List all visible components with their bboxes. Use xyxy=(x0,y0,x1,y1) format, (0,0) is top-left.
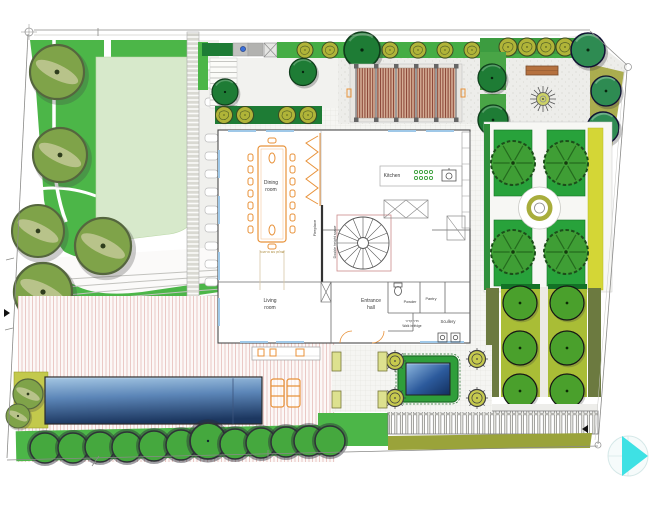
dining-room-label: Dining xyxy=(264,180,278,186)
yellow-planting-strip xyxy=(588,128,603,290)
site-plan-canvas: Dining room Kitchen Living room Entrance… xyxy=(0,0,649,509)
house: Dining room Kitchen Living room Entrance… xyxy=(218,130,470,356)
living-room-label: Living xyxy=(263,298,276,304)
hedge xyxy=(588,288,601,397)
shrub xyxy=(537,38,556,57)
double-height-label: Double height space xyxy=(333,226,337,259)
tree-center-dot xyxy=(207,440,209,442)
hedge-block xyxy=(202,43,233,56)
living-room-label: room xyxy=(264,305,275,311)
landscape-site-plan: Dining room Kitchen Living room Entrance… xyxy=(0,0,649,509)
shrub xyxy=(300,107,318,125)
pergola xyxy=(347,64,465,122)
formal-garden xyxy=(484,122,612,292)
orchard-path xyxy=(540,287,548,397)
shrub xyxy=(437,42,454,59)
tree xyxy=(491,230,535,274)
water-feature xyxy=(406,363,450,395)
central-fountain xyxy=(519,187,561,229)
walk-in-fridge-label: Walk in fridge xyxy=(402,324,421,328)
entrance-hall-label: hall xyxy=(367,305,375,311)
lawn xyxy=(96,57,195,240)
kitchen-label: Kitchen xyxy=(384,173,401,179)
tree xyxy=(544,141,588,185)
dining-table-note: שולחן עם הרחבה xyxy=(260,250,285,254)
entrance-hall-label: Entrance xyxy=(361,298,381,304)
utility-valve-icon xyxy=(240,46,245,51)
shrub xyxy=(237,107,255,125)
slat-walkway xyxy=(388,411,598,434)
walk-in-fridge-label-he: חדר קירור xyxy=(405,319,418,323)
north-arrow[interactable] xyxy=(608,436,648,476)
swimming-pool xyxy=(45,377,262,424)
shrub xyxy=(216,107,234,125)
shrub xyxy=(297,42,314,59)
shrub xyxy=(464,42,481,59)
tree xyxy=(491,141,535,185)
scullery-label: Scullery xyxy=(441,319,457,324)
shrub xyxy=(279,107,297,125)
utility-pad xyxy=(248,43,263,56)
powder-label: Powder xyxy=(404,300,418,304)
dining-room-label: room xyxy=(265,187,276,193)
shrub xyxy=(410,42,427,59)
shrub xyxy=(382,42,399,59)
outdoor-bar xyxy=(252,347,320,360)
pantry-label: Pantry xyxy=(426,297,437,301)
pergola-slats xyxy=(356,68,456,118)
tree xyxy=(544,230,588,274)
fireplace-label: Fireplace xyxy=(312,219,317,236)
shrub xyxy=(518,38,537,57)
entrance-court xyxy=(332,345,492,412)
stepping-path xyxy=(187,32,199,300)
shrub xyxy=(322,42,339,59)
